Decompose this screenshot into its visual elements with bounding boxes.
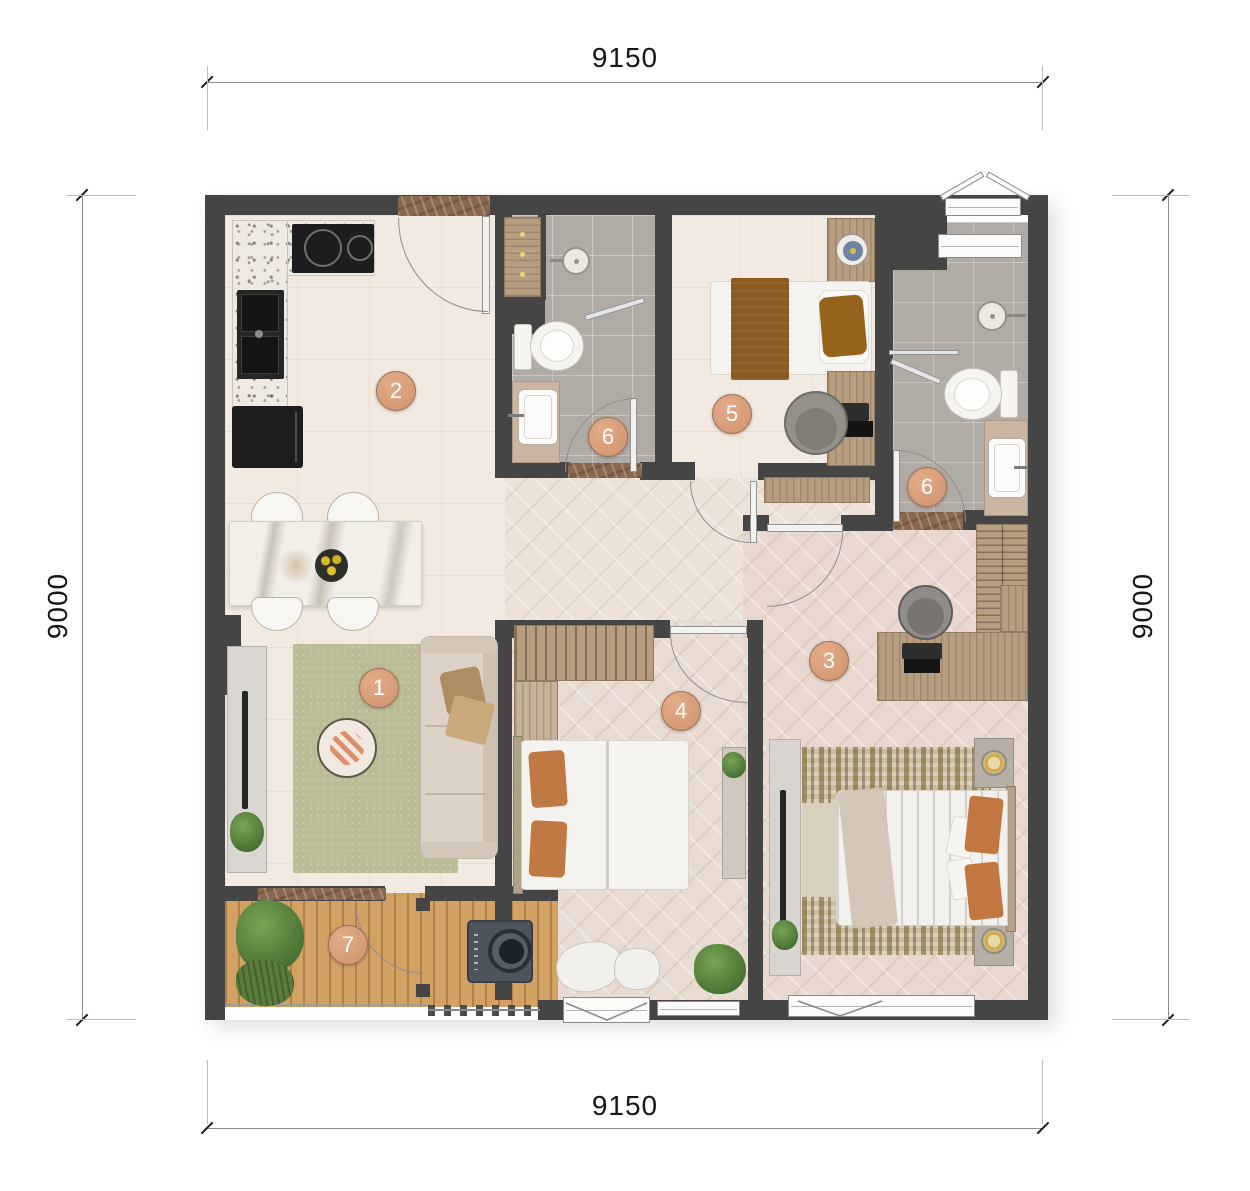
shower-glass-panel (889, 350, 959, 355)
extension-line (207, 1060, 208, 1124)
desk-chair (898, 585, 953, 640)
desk (877, 632, 1028, 701)
dim-line-right (1168, 195, 1169, 1020)
extension-line (1112, 1019, 1190, 1020)
blanket-brown (731, 278, 789, 380)
shower-head-center (990, 314, 995, 319)
kitchen-cooktop (292, 224, 374, 273)
toilet-bowl (944, 368, 1002, 420)
chair-seat (907, 598, 944, 635)
nightstand (974, 738, 1014, 788)
sofa-armrest (421, 842, 497, 858)
sofa-cushion-line (425, 793, 485, 795)
sink-faucet (508, 414, 524, 417)
table-flowers (276, 548, 316, 584)
chair-seat (795, 408, 837, 450)
toilet-bowl-inner (540, 330, 574, 362)
duvet-fold (606, 741, 609, 889)
threshold-balcony (258, 888, 386, 900)
window-bathroom2-mid (938, 234, 1022, 258)
extension-line (66, 195, 136, 196)
shower-head (562, 247, 590, 275)
coffee-table (317, 718, 377, 778)
room-label-living-room: 1 (359, 668, 399, 708)
tv-screen (780, 790, 786, 922)
window-bathroom2-top (945, 198, 1021, 216)
double-bed (521, 740, 689, 890)
shower-head-center (574, 259, 579, 264)
window-bedroom2-b (657, 1001, 740, 1016)
coffee-table-pattern (330, 731, 364, 765)
dim-line-left (82, 195, 83, 1020)
room-label-bathroom-1: 6 (588, 417, 628, 457)
wall-bathroom1-south (640, 462, 695, 480)
balcony-railing (428, 1005, 540, 1016)
desk-chair (784, 391, 848, 455)
extension-line (1042, 1060, 1043, 1124)
sofa (420, 636, 498, 859)
extension-line (1042, 66, 1043, 130)
floor-plan-canvas: 9150 9150 9000 9000 (0, 0, 1250, 1191)
pillow-orange (528, 750, 568, 808)
washer-drum (499, 939, 524, 964)
hallway-console (764, 477, 870, 503)
fruit-bowl (315, 549, 348, 582)
room-label-bathroom-2: 6 (907, 467, 947, 507)
double-bed (836, 790, 1008, 926)
wall-left (205, 195, 225, 1020)
cabinet-light (520, 252, 525, 257)
washer-controls (474, 934, 478, 970)
room-label-kitchen-dining: 2 (376, 371, 416, 411)
toilet-bowl (530, 321, 584, 371)
sink-basin (241, 294, 279, 332)
decor-plate-center (850, 248, 856, 254)
laptop (902, 643, 942, 673)
single-bed (710, 281, 872, 375)
cooktop-burner (347, 235, 373, 261)
fridge-handle (295, 412, 297, 462)
dim-label-right: 9000 (1127, 546, 1159, 666)
laptop-keyboard (904, 659, 940, 673)
balcony-plant-grass (236, 960, 294, 1006)
wall-bathroom1-east (655, 215, 672, 478)
sink-faucet (255, 330, 263, 338)
dim-label-left: 9000 (42, 546, 74, 666)
sofa-backrest (483, 645, 497, 852)
room-label-balcony: 7 (328, 925, 368, 965)
vanity-sink (518, 389, 558, 445)
cooktop-burner (304, 229, 342, 267)
toilet-tank (1000, 370, 1018, 418)
threshold-entry (398, 196, 490, 216)
dim-label-bottom: 9150 (400, 1090, 850, 1122)
laptop-screen (902, 643, 942, 659)
dim-line-top (207, 82, 1043, 83)
wall-bathroom2-west (875, 215, 893, 530)
pillow-brown (818, 294, 867, 358)
bench-plant (722, 752, 746, 778)
pillow-orange (964, 861, 1004, 920)
extension-line (66, 1019, 136, 1020)
room-label-bedroom-3: 5 (712, 394, 752, 434)
room-label-bedroom-2: 4 (661, 691, 701, 731)
wall-bedroom2-east (748, 620, 763, 1000)
balcony-door-post (416, 984, 430, 997)
table-lamp (981, 928, 1007, 954)
dim-line-bottom (207, 1128, 1043, 1129)
shower-arm (1004, 314, 1026, 317)
decor-plate (836, 234, 868, 266)
extension-line (207, 66, 208, 130)
window-opening-triangle-icon (563, 1001, 650, 1023)
extension-line (1112, 195, 1190, 196)
bedroom3-door-leaf (750, 481, 757, 543)
sink-inner (524, 395, 552, 439)
potted-plant (230, 812, 264, 852)
ottoman (614, 948, 660, 990)
wall-bathroom1-south (495, 462, 570, 478)
toilet-bowl-inner (954, 378, 990, 411)
wall-right (1028, 195, 1048, 1020)
entry-cabinet (504, 217, 541, 297)
wardrobe (514, 625, 654, 681)
washing-machine (467, 920, 533, 983)
dim-label-top: 9150 (400, 42, 850, 74)
tv-screen (242, 691, 248, 809)
kitchen-sink (237, 290, 284, 379)
sink-faucet (1014, 466, 1028, 469)
kitchen-fridge (232, 406, 303, 468)
pillow-orange (964, 795, 1004, 854)
pillow-orange (529, 820, 568, 878)
potted-plant (772, 920, 798, 950)
window-opening-triangle-icon (795, 999, 885, 1019)
table-lamp (981, 750, 1007, 776)
sofa-armrest (421, 637, 497, 653)
shower-head (977, 301, 1007, 331)
room-label-master-bedroom: 3 (809, 641, 849, 681)
wall-master-north (841, 515, 893, 531)
wardrobe-panel (514, 681, 558, 741)
blanket-fold (838, 787, 898, 929)
cabinet-light (520, 272, 525, 277)
wall-top (205, 195, 1048, 215)
sink-basin (241, 336, 279, 374)
desk-return (1000, 585, 1028, 632)
cabinet-light (520, 232, 525, 237)
potted-plant (694, 944, 746, 994)
